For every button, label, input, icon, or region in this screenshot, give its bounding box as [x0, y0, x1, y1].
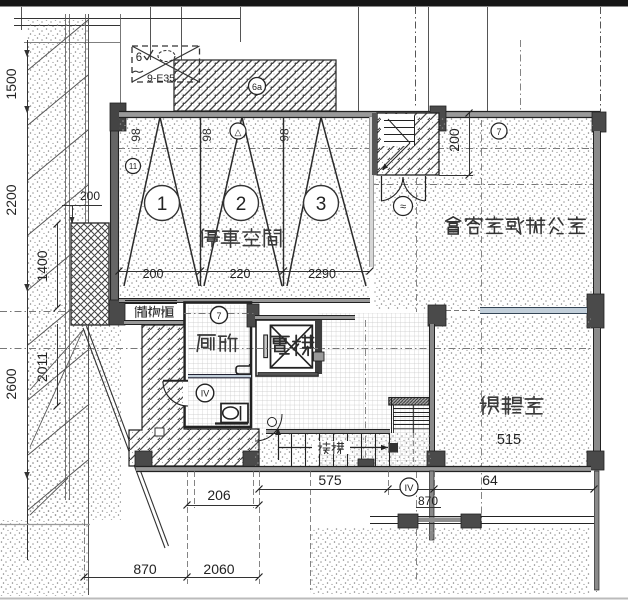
svg-text:△: △ [235, 127, 242, 137]
svg-text:11: 11 [129, 162, 138, 171]
svg-text:2060: 2060 [203, 561, 234, 577]
svg-text:98: 98 [278, 128, 292, 142]
svg-text:870: 870 [418, 494, 438, 508]
svg-text:9-E35: 9-E35 [147, 73, 175, 85]
svg-text:6: 6 [136, 52, 142, 64]
svg-text:515: 515 [497, 432, 521, 448]
svg-text:3: 3 [316, 194, 327, 215]
svg-text:2290: 2290 [308, 267, 336, 281]
svg-text:220: 220 [230, 267, 251, 281]
svg-text:IV: IV [201, 389, 210, 399]
svg-text:1400: 1400 [34, 250, 50, 281]
svg-text:575: 575 [318, 472, 342, 488]
svg-text:200: 200 [446, 128, 462, 152]
svg-text:206: 206 [207, 487, 231, 503]
svg-text:1: 1 [157, 194, 168, 215]
svg-text:2: 2 [236, 194, 247, 215]
svg-text:≈: ≈ [400, 201, 406, 213]
svg-text:1500: 1500 [3, 68, 19, 99]
svg-text:870: 870 [133, 561, 157, 577]
svg-text:2600: 2600 [3, 368, 19, 399]
svg-text:200: 200 [80, 189, 100, 203]
svg-text:64: 64 [482, 472, 498, 488]
svg-text:6a: 6a [252, 82, 262, 92]
svg-text:7: 7 [496, 127, 501, 137]
svg-text:2011: 2011 [34, 352, 50, 382]
svg-text:200: 200 [143, 267, 164, 281]
svg-text:98: 98 [200, 128, 214, 142]
svg-text:98: 98 [129, 128, 143, 142]
svg-text:IV: IV [405, 483, 415, 494]
svg-text:7: 7 [216, 311, 221, 321]
svg-text:2200: 2200 [3, 184, 19, 215]
